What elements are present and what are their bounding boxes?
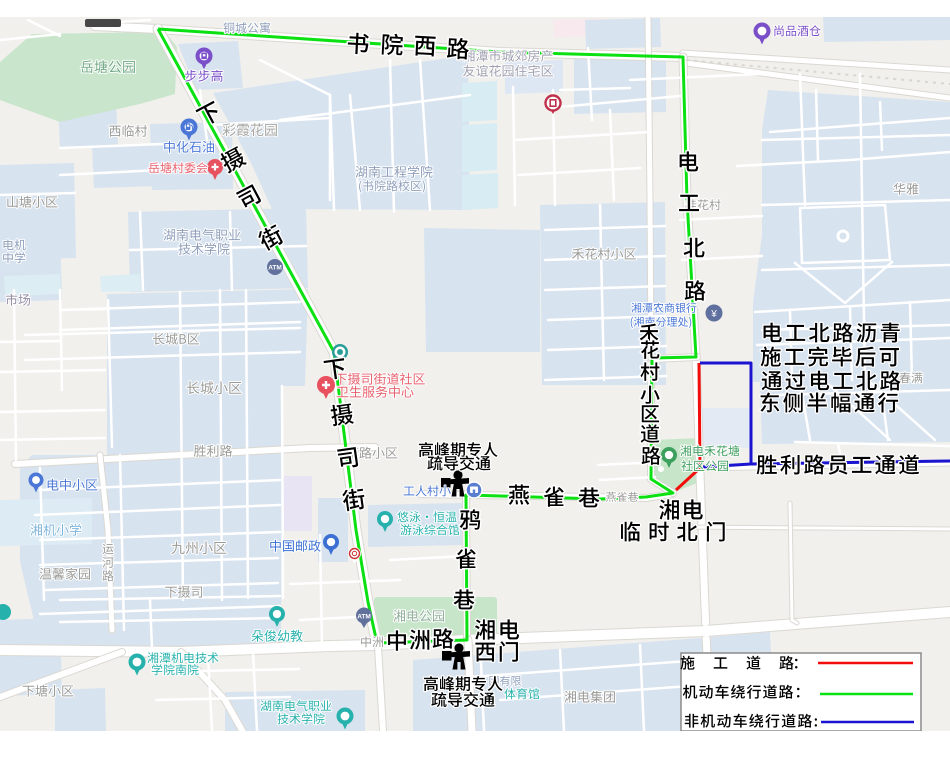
- svg-text:¥: ¥: [710, 309, 717, 320]
- svg-text:ATM: ATM: [357, 614, 371, 621]
- svg-text:ATM: ATM: [268, 265, 282, 272]
